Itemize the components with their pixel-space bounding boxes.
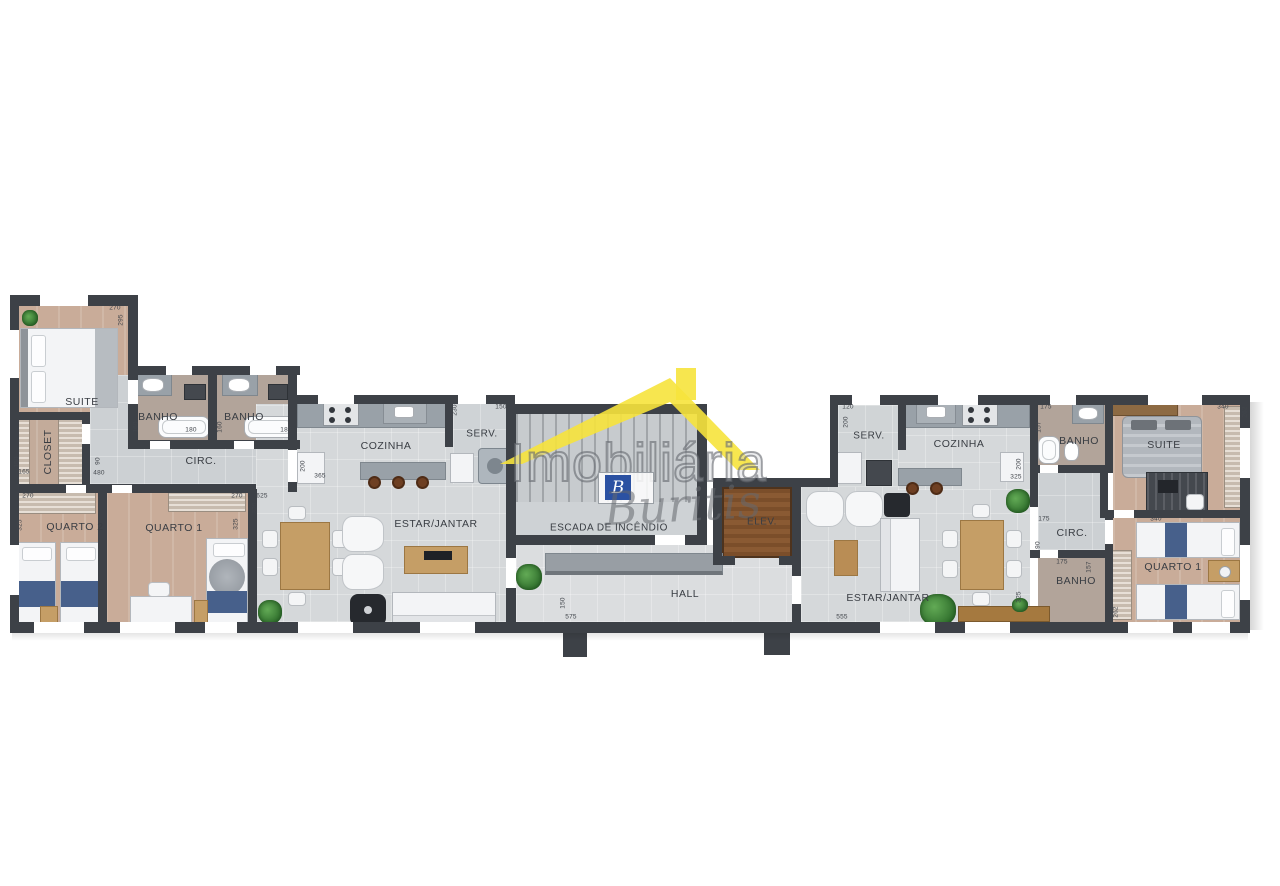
wall (713, 556, 735, 565)
plant (1006, 489, 1030, 513)
door-gap (288, 450, 297, 482)
room-label-quarto-1: QUARTO 1 (1144, 561, 1201, 573)
bed-runner (207, 591, 247, 613)
armchair (806, 491, 844, 527)
bed-quarto1-right (1136, 584, 1240, 620)
dim-label: 365 (314, 473, 325, 480)
sideboard (958, 606, 1050, 622)
dim-label: 180 (185, 427, 196, 434)
bed-quarto1-right (1136, 522, 1240, 558)
armchair (845, 491, 883, 527)
dim-label: 480 (93, 470, 104, 477)
laundry-tub (836, 452, 862, 484)
window (10, 330, 19, 378)
wall-shadow (1250, 402, 1264, 630)
dining-chair (288, 506, 306, 520)
window (938, 395, 978, 405)
room-label-cozinha: COZINHA (934, 438, 985, 450)
sink (1078, 407, 1098, 420)
plant (516, 564, 542, 590)
dim-label: 295 (118, 314, 125, 325)
door-gap (792, 576, 801, 604)
door-gap (655, 535, 685, 545)
dining-chair (262, 530, 278, 548)
dim-label: 150 (495, 404, 506, 411)
stair-treads (516, 414, 697, 502)
dining-chair (288, 592, 306, 606)
tv (424, 551, 452, 560)
dim-label: 90 (1035, 541, 1042, 549)
wall (506, 404, 516, 545)
wall (713, 478, 722, 562)
room-label-serv-: SERV. (853, 431, 884, 442)
dining-chair (972, 592, 990, 606)
room-label-circ-: CIRC. (185, 455, 216, 467)
dim-label: 160 (217, 421, 224, 432)
bed-runner (61, 581, 99, 607)
dim-label: 160 (133, 421, 140, 432)
wall (506, 404, 707, 414)
room-label-elev-: ELEV. (747, 517, 777, 528)
dining-table-right (960, 520, 1004, 590)
bar-stool (392, 476, 405, 489)
window (880, 622, 935, 633)
window (1240, 545, 1250, 600)
bed-runner (1165, 585, 1187, 619)
room-label-suite: SUITE (1147, 439, 1180, 451)
dim-label: 230 (452, 404, 459, 415)
dim-label: 270 (231, 493, 242, 500)
dim-label: 150 (560, 597, 567, 608)
wall (1030, 395, 1038, 507)
dim-label: 270 (22, 493, 33, 500)
dining-chair (1006, 560, 1022, 578)
window (1050, 395, 1076, 405)
window (1240, 428, 1250, 478)
dim-label: 175 (1056, 559, 1067, 566)
laptop (1158, 480, 1178, 493)
dim-label: 180 (280, 427, 291, 434)
dim-label: 270 (109, 305, 120, 312)
bed-quarto2 (60, 542, 100, 626)
window (120, 622, 175, 633)
window (420, 622, 475, 633)
room-label-banho: BANHO (1059, 435, 1099, 447)
window (298, 622, 353, 633)
sink (142, 378, 164, 392)
wall (713, 478, 801, 487)
dining-table-left (280, 522, 330, 590)
door-gap (234, 441, 254, 449)
bed-runner (1165, 523, 1187, 557)
dining-chair (942, 530, 958, 548)
pillow (1131, 420, 1157, 430)
machine-door (487, 458, 503, 474)
room-label-banho: BANHO (138, 411, 178, 423)
window (965, 622, 1010, 633)
room-label-hall: HALL (671, 588, 699, 600)
door-gap (1105, 520, 1113, 544)
pillow (1165, 420, 1191, 430)
dim-label: 325 (252, 502, 259, 513)
bed-runner (17, 581, 55, 607)
bar-stool (416, 476, 429, 489)
dim-label: 340 (1217, 404, 1228, 411)
room-label-escada-de-inc-ndio: ESCADA DE INCÊNDIO (550, 523, 668, 534)
lamp (1219, 566, 1231, 578)
sink (926, 406, 946, 418)
room-label-banho: BANHO (224, 411, 264, 423)
wall (792, 478, 801, 568)
wall (898, 395, 906, 450)
wall (10, 622, 1250, 633)
dining-chair (1006, 530, 1022, 548)
window (1128, 622, 1173, 633)
door-gap (150, 441, 170, 449)
bathtub (1038, 436, 1060, 464)
armchair (342, 554, 384, 590)
wall (1105, 395, 1113, 473)
room-label-circ-: CIRC. (1056, 527, 1087, 539)
dim-label: 555 (836, 614, 847, 621)
dim-label: 200 (843, 416, 850, 427)
desk-chair (148, 582, 170, 597)
dim-label: 575 (565, 614, 576, 621)
wall (18, 412, 90, 420)
dim-label: 325 (17, 519, 24, 530)
door-gap (82, 424, 90, 444)
room-label-quarto-2: QUARTO 2 (46, 521, 103, 533)
sink (394, 406, 414, 418)
window (205, 622, 237, 633)
pillow (1221, 590, 1235, 618)
laundry-tub (450, 453, 474, 483)
room-label-quarto-1: QUARTO 1 (145, 522, 202, 534)
pillow (66, 547, 96, 561)
window (458, 395, 486, 404)
room-label-cozinha: COZINHA (361, 440, 412, 452)
window (10, 545, 19, 595)
dim-label: 262 (1113, 606, 1120, 617)
door-gap (1040, 550, 1058, 558)
dim-label: 625 (256, 493, 267, 500)
bar-stool (368, 476, 381, 489)
window (852, 395, 880, 405)
pillow (22, 547, 52, 561)
dim-label: 325 (1016, 591, 1023, 602)
dim-label: 150 (14, 456, 21, 467)
closet-wardrobe (58, 418, 84, 490)
dim-label: 200 (1016, 458, 1023, 469)
room-label-banho: BANHO (1056, 575, 1096, 587)
wall-shadow (12, 633, 1248, 641)
dim-label: 120 (842, 404, 853, 411)
wall (445, 395, 453, 447)
door-gap (1040, 465, 1058, 473)
plant (22, 310, 38, 326)
pillow (31, 335, 46, 367)
shower (184, 384, 206, 400)
side-table (834, 540, 858, 576)
door-gap (1114, 510, 1134, 518)
sink (228, 378, 250, 392)
hall-bench (545, 553, 723, 575)
dim-label: 325 (1010, 474, 1021, 481)
room-label-estar-jantar: ESTAR/JANTAR (846, 592, 929, 604)
dining-chair (972, 504, 990, 518)
nightstand (1208, 560, 1240, 582)
dim-label: 175 (1040, 404, 1051, 411)
door-gap (128, 380, 138, 404)
wall (10, 484, 256, 493)
shower (268, 384, 288, 400)
room-label-serv-: SERV. (466, 429, 497, 440)
bed-quarto1-left (206, 538, 248, 626)
pillow (31, 371, 46, 403)
floor-plan-image: Imobiliária B Buritis SUITECLOSETBANHOBA… (0, 0, 1280, 886)
tv (884, 493, 910, 517)
window (318, 395, 354, 404)
dim-label: 165 (18, 469, 29, 476)
dining-chair (942, 560, 958, 578)
window (250, 366, 276, 375)
decor (364, 606, 372, 614)
wall (779, 556, 801, 565)
window (40, 295, 88, 306)
pillow (1221, 528, 1235, 556)
water-heater (866, 460, 892, 486)
sofa-left (392, 592, 496, 626)
wall (697, 404, 707, 545)
dim-label: 340 (1150, 516, 1161, 523)
armchair (342, 516, 384, 552)
dim-label: 157 (1086, 561, 1093, 572)
dim-label: 175 (1038, 516, 1049, 523)
window (34, 622, 84, 633)
door-gap (66, 485, 86, 493)
stove (323, 402, 359, 426)
plant (258, 600, 282, 624)
pillow (213, 543, 245, 557)
wall (98, 489, 107, 632)
sofa-right (880, 518, 920, 592)
bar-stool (930, 482, 943, 495)
room-label-estar-jantar: ESTAR/JANTAR (394, 518, 477, 530)
window (1192, 622, 1230, 633)
desk-chair (1186, 494, 1204, 510)
stove (962, 402, 998, 426)
dim-label: 157 (1036, 421, 1043, 432)
sofa-back (881, 519, 891, 591)
window (166, 366, 192, 375)
wall (208, 366, 217, 449)
room-label-closet: CLOSET (42, 429, 54, 474)
dim-label: 90 (95, 457, 102, 465)
wall (830, 395, 838, 487)
dim-label: 200 (300, 460, 307, 471)
door-gap (112, 485, 132, 493)
dim-label: 262 (1242, 406, 1249, 417)
bed-blanket (209, 559, 245, 595)
dim-label: 325 (233, 518, 240, 529)
room-label-suite: SUITE (65, 396, 98, 408)
dining-chair (262, 558, 278, 576)
door-gap (506, 558, 516, 588)
headboard (21, 329, 28, 407)
window (1148, 395, 1202, 405)
